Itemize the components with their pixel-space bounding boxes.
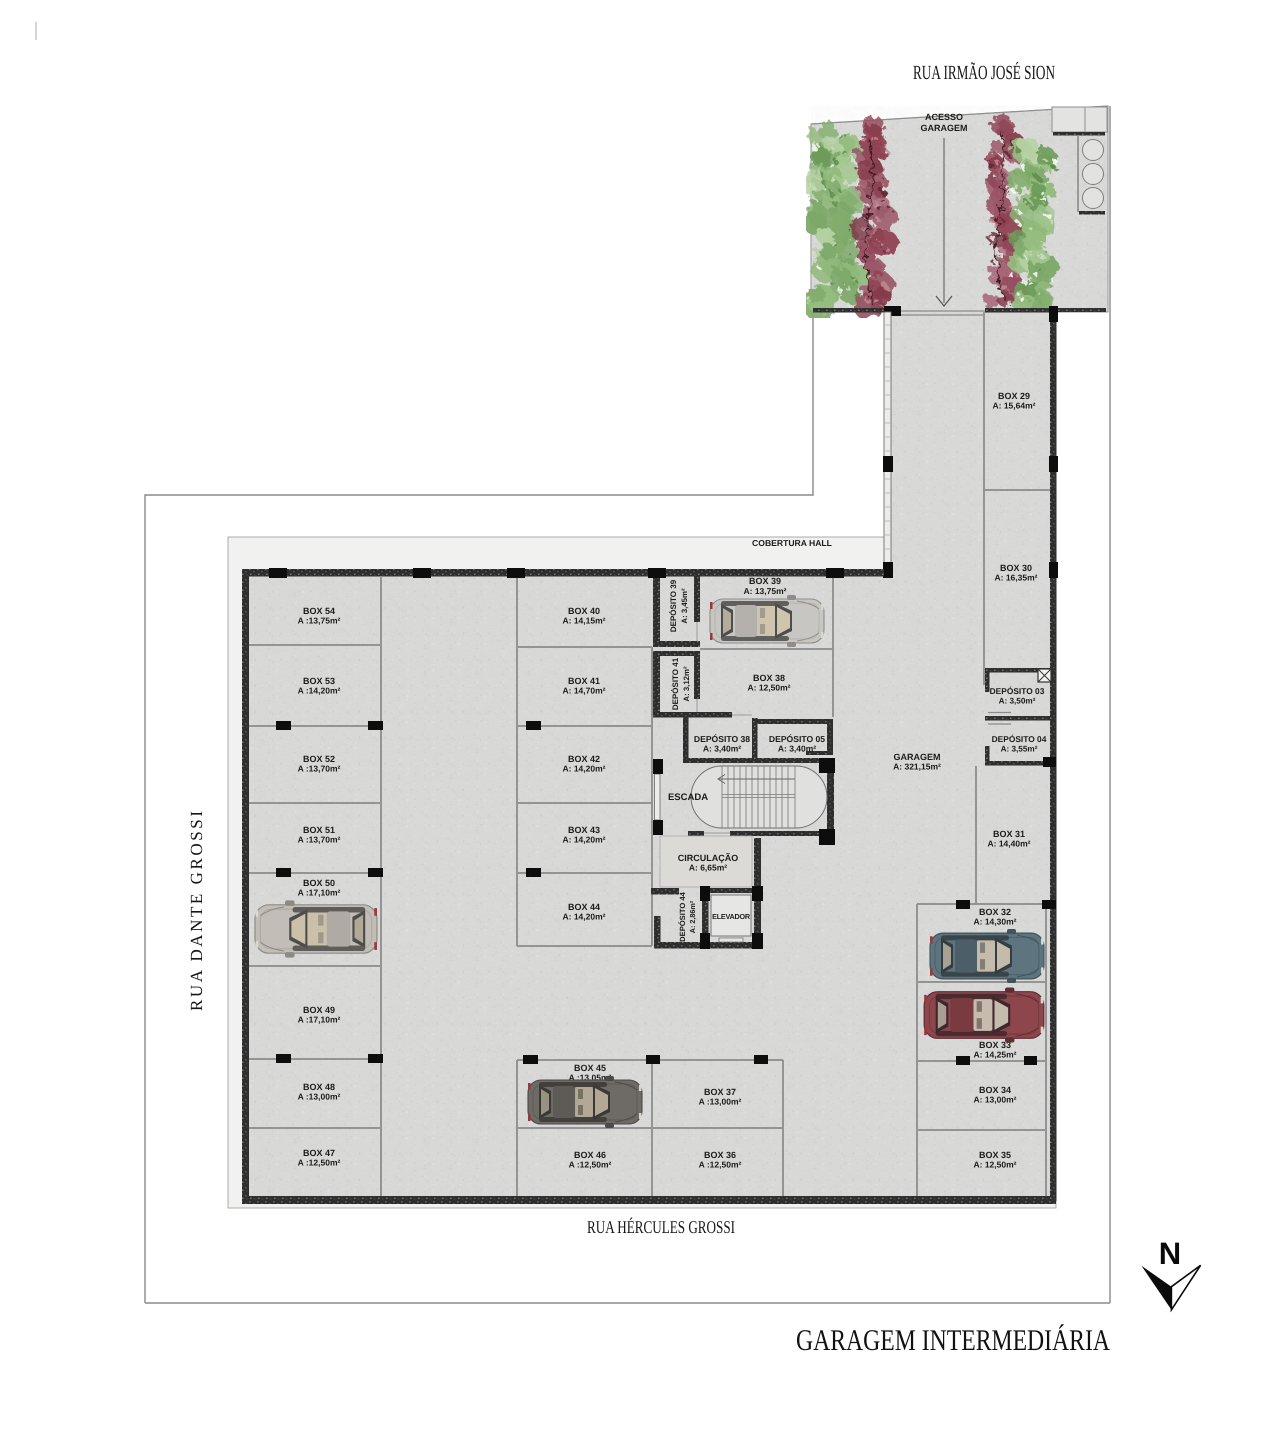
svg-text:A: 14,40m²: A: 14,40m² bbox=[988, 839, 1031, 849]
svg-text:BOX 30: BOX 30 bbox=[1000, 563, 1032, 573]
svg-text:BOX 45: BOX 45 bbox=[574, 1063, 606, 1073]
svg-text:BOX 46: BOX 46 bbox=[574, 1150, 606, 1160]
svg-text:BOX 43: BOX 43 bbox=[568, 825, 600, 835]
svg-text:COBERTURA HALL: COBERTURA HALL bbox=[752, 538, 832, 548]
svg-text:A: 15,64m²: A: 15,64m² bbox=[993, 401, 1036, 411]
svg-text:A: 6,65m²: A: 6,65m² bbox=[689, 863, 727, 873]
svg-text:A :12,50m²: A :12,50m² bbox=[699, 1160, 742, 1170]
svg-text:GARAGEM: GARAGEM bbox=[894, 752, 941, 762]
svg-text:GARAGEM INTERMEDIÁRIA: GARAGEM INTERMEDIÁRIA bbox=[796, 1324, 1110, 1357]
svg-text:ACESSO: ACESSO bbox=[925, 112, 963, 122]
svg-text:A :14,20m²: A :14,20m² bbox=[298, 686, 341, 696]
svg-text:DEPÓSITO 39: DEPÓSITO 39 bbox=[668, 579, 678, 632]
svg-text:BOX 53: BOX 53 bbox=[303, 676, 335, 686]
svg-text:A: 3,55m²: A: 3,55m² bbox=[1001, 745, 1038, 754]
svg-text:BOX 37: BOX 37 bbox=[704, 1087, 736, 1097]
svg-text:BOX 32: BOX 32 bbox=[979, 907, 1011, 917]
svg-text:A: 14,70m²: A: 14,70m² bbox=[563, 686, 606, 696]
svg-text:A: 16,35m²: A: 16,35m² bbox=[995, 573, 1038, 583]
svg-text:A: 2,86m²: A: 2,86m² bbox=[688, 900, 697, 933]
svg-text:A :12,50m²: A :12,50m² bbox=[569, 1160, 612, 1170]
svg-text:BOX 38: BOX 38 bbox=[753, 673, 785, 683]
svg-text:A :17,10m²: A :17,10m² bbox=[298, 888, 341, 898]
svg-text:ELEVADOR: ELEVADOR bbox=[712, 912, 751, 921]
svg-text:DEPÓSITO 41: DEPÓSITO 41 bbox=[670, 657, 680, 710]
svg-text:BOX 39: BOX 39 bbox=[749, 576, 781, 586]
svg-text:A: 3,45m²: A: 3,45m² bbox=[680, 588, 689, 624]
svg-text:A :13,00m²: A :13,00m² bbox=[699, 1097, 742, 1107]
svg-text:GARAGEM: GARAGEM bbox=[921, 123, 968, 133]
svg-text:A: 13,00m²: A: 13,00m² bbox=[974, 1095, 1017, 1105]
svg-text:DEPÓSITO 05: DEPÓSITO 05 bbox=[769, 734, 825, 744]
svg-text:RUA IRMÃO JOSÉ SION: RUA IRMÃO JOSÉ SION bbox=[913, 61, 1055, 84]
svg-text:BOX 31: BOX 31 bbox=[993, 829, 1025, 839]
svg-text:A: 14,20m²: A: 14,20m² bbox=[563, 764, 606, 774]
svg-text:BOX 44: BOX 44 bbox=[568, 902, 600, 912]
svg-text:BOX 36: BOX 36 bbox=[704, 1150, 736, 1160]
svg-text:BOX 29: BOX 29 bbox=[998, 391, 1030, 401]
svg-text:A: 14,20m²: A: 14,20m² bbox=[563, 835, 606, 845]
svg-text:A: 3,40m²: A: 3,40m² bbox=[703, 744, 741, 754]
svg-text:BOX 35: BOX 35 bbox=[979, 1150, 1011, 1160]
svg-text:BOX 42: BOX 42 bbox=[568, 754, 600, 764]
svg-text:ESCADA: ESCADA bbox=[668, 792, 708, 803]
svg-text:BOX 54: BOX 54 bbox=[303, 606, 335, 616]
svg-text:BOX 50: BOX 50 bbox=[303, 878, 335, 888]
svg-text:A: 14,20m²: A: 14,20m² bbox=[563, 912, 606, 922]
svg-text:BOX 52: BOX 52 bbox=[303, 754, 335, 764]
svg-text:RUA HÉRCULES GROSSI: RUA HÉRCULES GROSSI bbox=[587, 1217, 735, 1237]
svg-text:A: 14,25m²: A: 14,25m² bbox=[974, 1050, 1017, 1060]
svg-text:DEPÓSITO 38: DEPÓSITO 38 bbox=[694, 734, 750, 744]
svg-text:DEPÓSITO 04: DEPÓSITO 04 bbox=[992, 734, 1047, 744]
svg-text:A: 3,12m²: A: 3,12m² bbox=[682, 666, 691, 702]
svg-text:DEPÓSITO 03: DEPÓSITO 03 bbox=[990, 686, 1045, 696]
svg-text:BOX 34: BOX 34 bbox=[979, 1085, 1011, 1095]
svg-text:A :12,50m²: A :12,50m² bbox=[298, 1158, 341, 1168]
svg-text:A: 3,40m²: A: 3,40m² bbox=[778, 744, 816, 754]
svg-text:A: 321,15m²: A: 321,15m² bbox=[893, 762, 941, 772]
svg-text:A: 14,30m²: A: 14,30m² bbox=[974, 917, 1017, 927]
svg-text:A: 13,75m²: A: 13,75m² bbox=[744, 586, 787, 596]
svg-text:N: N bbox=[1159, 1236, 1181, 1271]
svg-text:RUA DANTE GROSSI: RUA DANTE GROSSI bbox=[187, 811, 206, 1011]
svg-text:A :13,70m²: A :13,70m² bbox=[298, 764, 341, 774]
svg-text:A: 14,15m²: A: 14,15m² bbox=[563, 616, 606, 626]
svg-text:DEPÓSITO 44: DEPÓSITO 44 bbox=[678, 891, 687, 941]
svg-text:A :17,10m²: A :17,10m² bbox=[298, 1015, 341, 1025]
svg-text:A :13,75m²: A :13,75m² bbox=[298, 616, 341, 626]
svg-text:BOX 41: BOX 41 bbox=[568, 676, 600, 686]
svg-text:A :13,70m²: A :13,70m² bbox=[298, 835, 341, 845]
svg-text:BOX 49: BOX 49 bbox=[303, 1005, 335, 1015]
svg-text:A :13,00m²: A :13,00m² bbox=[298, 1092, 341, 1102]
svg-text:BOX 51: BOX 51 bbox=[303, 825, 335, 835]
svg-text:BOX 47: BOX 47 bbox=[303, 1148, 335, 1158]
svg-text:A: 12,50m²: A: 12,50m² bbox=[748, 683, 791, 693]
svg-text:BOX 48: BOX 48 bbox=[303, 1082, 335, 1092]
svg-text:BOX 40: BOX 40 bbox=[568, 606, 600, 616]
svg-text:A: 3,50m²: A: 3,50m² bbox=[999, 697, 1036, 706]
svg-text:A: 12,50m²: A: 12,50m² bbox=[974, 1160, 1017, 1170]
svg-text:CIRCULAÇÃO: CIRCULAÇÃO bbox=[678, 852, 739, 863]
